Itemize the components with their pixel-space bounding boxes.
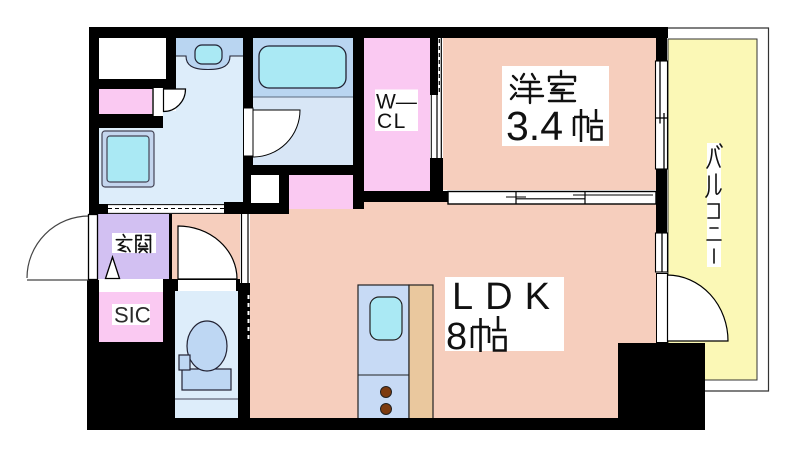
svg-text:3.4: 3.4: [506, 103, 563, 149]
svg-text:SIC: SIC: [114, 303, 151, 328]
svg-text:8: 8: [446, 316, 467, 358]
svg-text:LDK: LDK: [452, 276, 562, 318]
svg-text:CL: CL: [377, 110, 407, 133]
